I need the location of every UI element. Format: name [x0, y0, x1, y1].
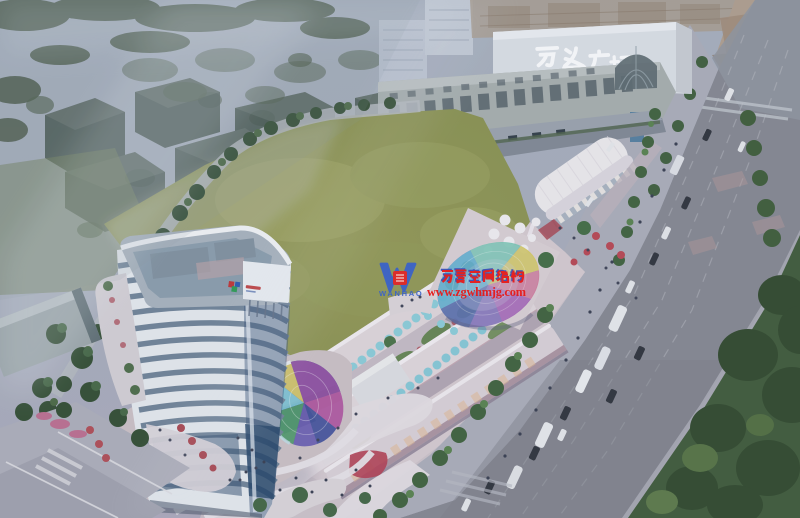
svg-text:WANHAO: WANHAO [379, 289, 423, 298]
svg-text:www.zgwhmjg.com: www.zgwhmjg.com [427, 285, 527, 299]
